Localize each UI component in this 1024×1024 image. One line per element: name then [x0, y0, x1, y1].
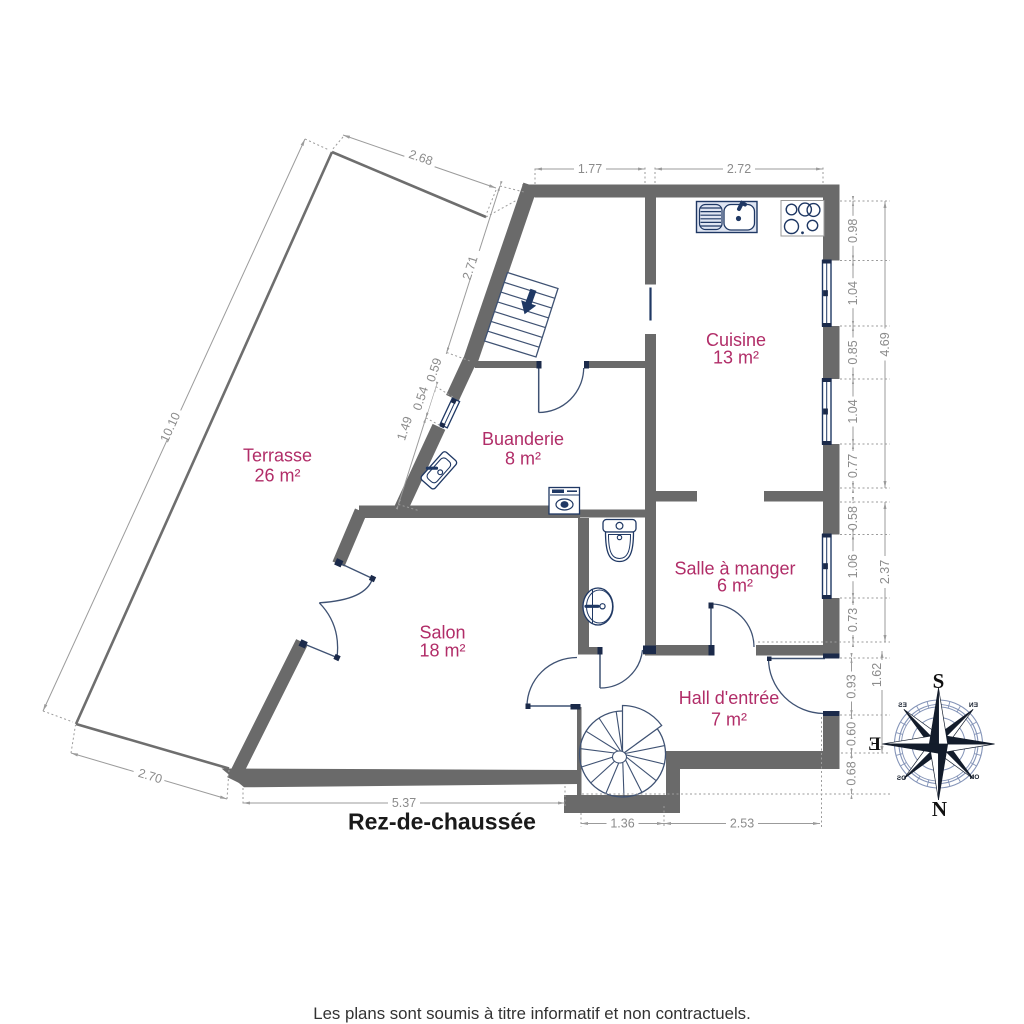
svg-text:1.04: 1.04	[846, 281, 860, 305]
svg-text:1.06: 1.06	[846, 554, 860, 578]
svg-text:1.62: 1.62	[870, 663, 884, 687]
svg-text:7 m²: 7 m²	[711, 710, 747, 730]
svg-text:Terrasse: Terrasse	[243, 446, 312, 466]
svg-text:2.53: 2.53	[730, 817, 754, 831]
svg-text:Hall d'entrée: Hall d'entrée	[679, 688, 780, 708]
svg-text:0.85: 0.85	[846, 340, 860, 364]
svg-text:1.77: 1.77	[578, 162, 602, 176]
svg-text:0.93: 0.93	[845, 674, 859, 698]
svg-text:Buanderie: Buanderie	[482, 429, 564, 449]
svg-text:13 m²: 13 m²	[713, 348, 759, 368]
svg-text:0.77: 0.77	[846, 454, 860, 478]
svg-text:0.73: 0.73	[846, 608, 860, 632]
svg-text:0.58: 0.58	[846, 506, 860, 530]
svg-text:Rez-de-chaussée: Rez-de-chaussée	[348, 809, 536, 835]
svg-text:ES: ES	[898, 702, 907, 709]
svg-text:Les plans sont soumis à titre: Les plans sont soumis à titre informatif…	[313, 1004, 750, 1023]
svg-text:0.60: 0.60	[845, 722, 859, 746]
svg-text:0.98: 0.98	[846, 219, 860, 243]
svg-text:18 m²: 18 m²	[419, 641, 465, 661]
svg-text:4.69: 4.69	[878, 332, 892, 356]
svg-text:1.36: 1.36	[610, 817, 634, 831]
svg-text:0.68: 0.68	[845, 761, 859, 785]
svg-text:1.04: 1.04	[846, 399, 860, 423]
svg-text:Salon: Salon	[419, 623, 465, 643]
svg-text:2.37: 2.37	[878, 560, 892, 584]
svg-text:OS: OS	[896, 775, 906, 782]
svg-text:N: N	[932, 797, 947, 821]
svg-text:2.72: 2.72	[727, 162, 751, 176]
svg-text:ON: ON	[969, 774, 979, 781]
svg-text:26 m²: 26 m²	[254, 466, 300, 486]
svg-text:6 m²: 6 m²	[717, 576, 753, 596]
svg-text:8 m²: 8 m²	[505, 449, 541, 469]
svg-text:E: E	[868, 734, 881, 755]
svg-text:S: S	[933, 669, 945, 693]
svg-text:EN: EN	[969, 702, 978, 709]
